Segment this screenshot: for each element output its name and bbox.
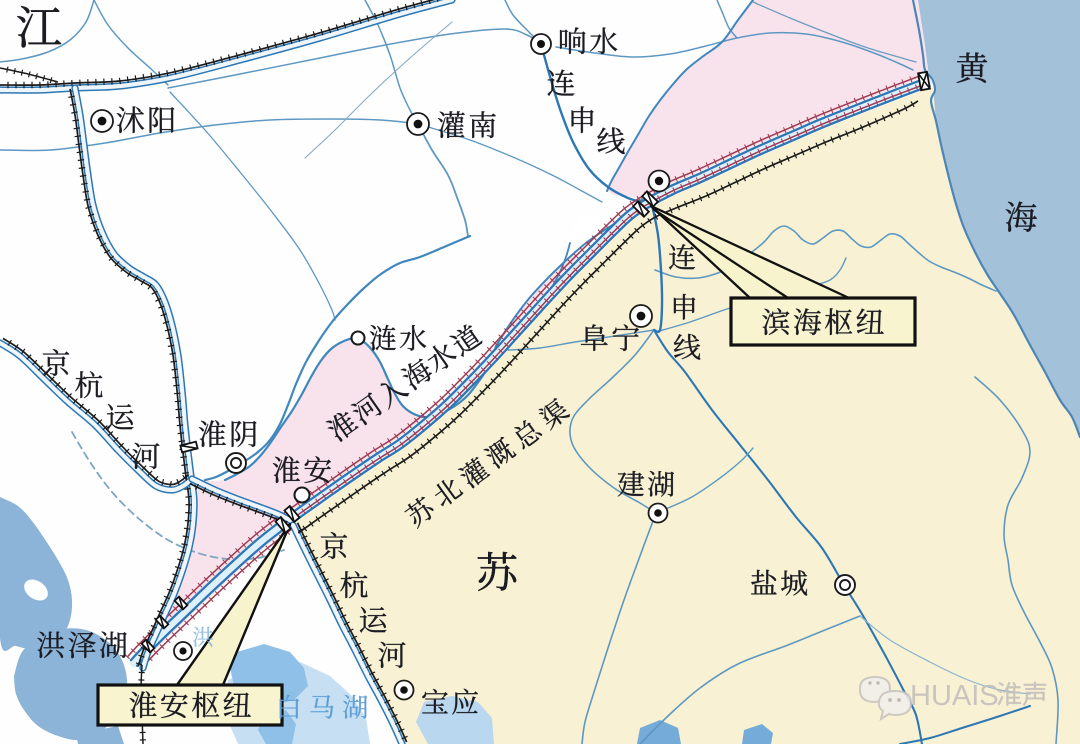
- svg-text:HUAIS: HUAIS: [910, 680, 999, 712]
